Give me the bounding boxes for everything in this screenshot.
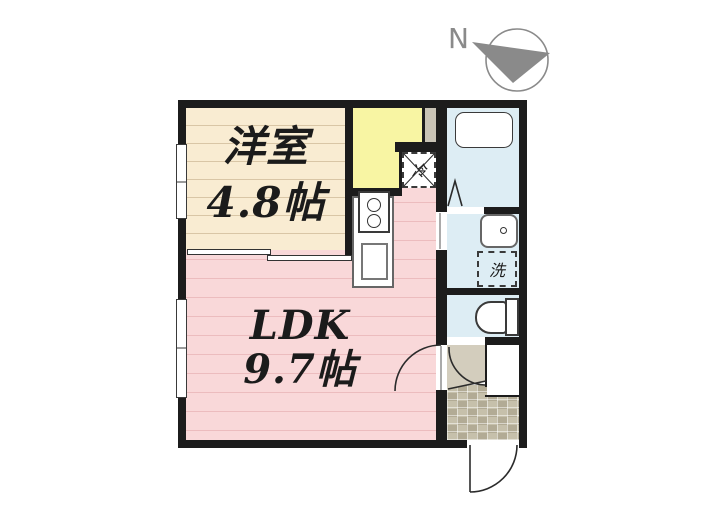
ldk-size-label: 9.7帖 bbox=[190, 350, 410, 390]
washbasin bbox=[480, 214, 518, 248]
wall-pipe-left bbox=[422, 108, 425, 142]
cabinet-divider-v bbox=[485, 345, 487, 387]
floor-plan: 冷 洗 N 洋室 4.8帖 LDK 9.7帖 bbox=[0, 0, 720, 512]
yoshitsu-size-label: 4.8帖 bbox=[176, 182, 356, 224]
yoshitsu-name-label: 洋室 bbox=[186, 126, 346, 168]
entry-hall-floor bbox=[447, 345, 485, 389]
compass-north-label: N bbox=[448, 22, 469, 55]
wall-wash-toilet bbox=[447, 288, 519, 295]
toilet-tank bbox=[505, 298, 519, 336]
cabinet-divider-h bbox=[485, 395, 519, 397]
wall-outer-right bbox=[519, 100, 527, 448]
toilet-bowl bbox=[475, 301, 507, 334]
stove-burner-1 bbox=[367, 198, 381, 212]
sliding-door-panel-1 bbox=[187, 249, 271, 255]
closet-area-lower bbox=[353, 142, 399, 188]
wall-outer-top bbox=[178, 100, 527, 108]
entrance-door-opening bbox=[467, 440, 519, 448]
washer-space: 洗 bbox=[477, 251, 517, 287]
window-ldk-mullion bbox=[177, 347, 186, 349]
closet-area-top bbox=[353, 108, 422, 142]
stove-burner-2 bbox=[367, 214, 381, 228]
compass-circle bbox=[486, 29, 548, 91]
ldk-name-label: LDK bbox=[200, 306, 400, 346]
bath-door-opening bbox=[447, 207, 484, 214]
toilet-door-opening bbox=[447, 337, 485, 345]
washbasin-drain bbox=[500, 227, 507, 234]
ldk-door-opening bbox=[436, 345, 447, 390]
washroom-door-opening bbox=[436, 212, 447, 250]
refrigerator-label: 冷 bbox=[411, 160, 426, 181]
washer-label: 洗 bbox=[489, 257, 505, 281]
compass-needle-icon bbox=[472, 42, 550, 83]
pipe-space bbox=[425, 108, 436, 142]
kitchen-sink bbox=[361, 243, 388, 280]
sliding-door-panel-2 bbox=[267, 255, 352, 261]
bathtub bbox=[455, 112, 513, 148]
refrigerator-space: 冷 bbox=[402, 152, 436, 188]
entrance-door-arc bbox=[470, 445, 517, 492]
shoe-cabinet bbox=[487, 345, 519, 397]
